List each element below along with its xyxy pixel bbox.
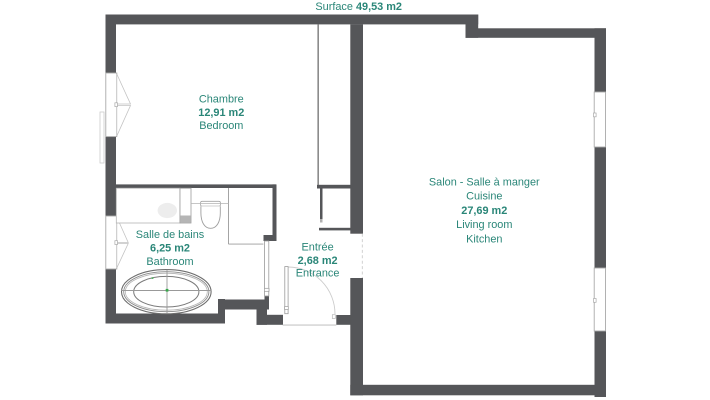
svg-text:Salle de bains: Salle de bains: [136, 229, 205, 241]
svg-text:Kitchen: Kitchen: [466, 233, 502, 245]
svg-text:Entrée: Entrée: [302, 242, 334, 254]
svg-text:12,91 m2: 12,91 m2: [198, 107, 244, 119]
svg-text:Entrance: Entrance: [296, 268, 340, 280]
svg-text:27,69 m2: 27,69 m2: [461, 205, 507, 217]
svg-text:Bathroom: Bathroom: [146, 256, 193, 268]
svg-text:Bedroom: Bedroom: [199, 120, 243, 132]
svg-text:Surface 49,53 m2: Surface 49,53 m2: [315, 1, 402, 13]
svg-text:Cuisine: Cuisine: [466, 191, 502, 203]
svg-text:Salon - Salle à manger: Salon - Salle à manger: [429, 176, 540, 188]
svg-text:Chambre: Chambre: [199, 94, 244, 106]
svg-text:6,25 m2: 6,25 m2: [150, 243, 190, 255]
svg-text:Living room: Living room: [456, 219, 512, 231]
svg-text:2,68 m2: 2,68 m2: [298, 255, 338, 267]
